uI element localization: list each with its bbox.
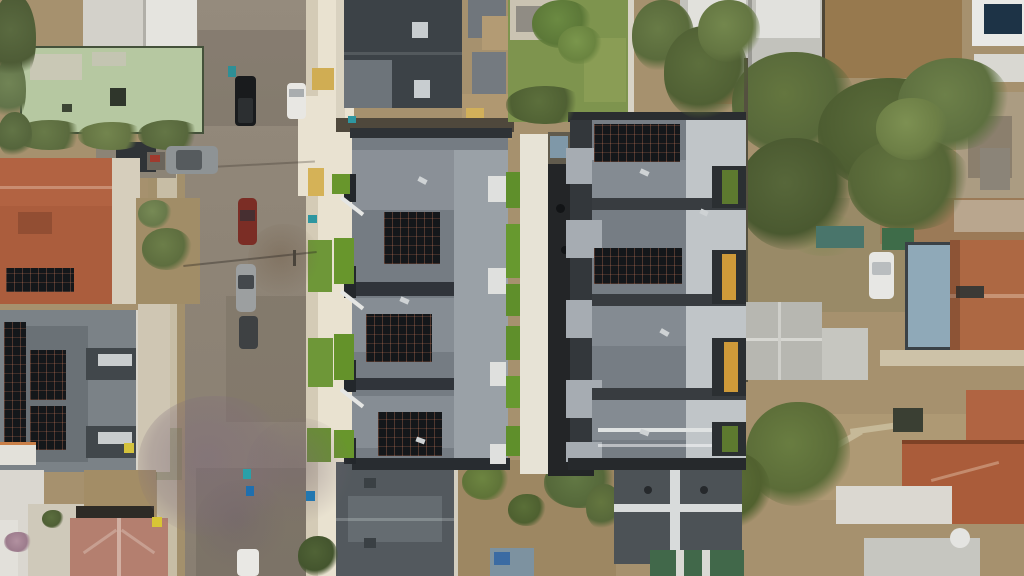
rb2-hip-light-2 xyxy=(592,306,686,346)
mansion-solar-1 xyxy=(30,350,66,400)
lb-lawn-1 xyxy=(332,174,350,194)
rb2-solar-1 xyxy=(594,124,680,162)
car-suv-gray-glass xyxy=(176,150,202,170)
skylight-2 xyxy=(414,80,430,98)
lb-white-patio-2 xyxy=(488,268,506,294)
bin-teal-3 xyxy=(308,215,317,223)
lb-court-green-3 xyxy=(506,284,520,316)
bc-green-stripe-2 xyxy=(702,550,710,576)
bin-yellow-2 xyxy=(152,517,162,527)
lb-court-green-5 xyxy=(506,376,520,408)
rb2-hip-light-3 xyxy=(592,400,686,440)
sand-patch-2 xyxy=(312,68,334,90)
garden-bush-1 xyxy=(142,228,192,270)
terracotta-patch xyxy=(18,212,52,234)
junk-metal-2 xyxy=(980,148,1010,190)
tennis-court-item xyxy=(62,104,72,112)
bc-cross-h xyxy=(614,504,742,512)
backyard-car-glass xyxy=(872,262,891,275)
rb-water-heater xyxy=(950,528,970,548)
bin-teal-1 xyxy=(228,66,236,77)
rb2-gap-green-2 xyxy=(722,426,738,452)
rb2-solar-2 xyxy=(594,248,682,284)
gray-shed xyxy=(740,302,822,380)
terracotta-ridge xyxy=(0,186,116,189)
bin-blue-2 xyxy=(306,491,315,501)
verge-lawn-2 xyxy=(308,338,333,387)
lb-white-patio-4 xyxy=(490,444,506,464)
bc-roof-ridge xyxy=(336,518,454,521)
bl-orange-trim xyxy=(0,442,36,445)
garden-dark-bush xyxy=(506,86,584,124)
bin-blue-1 xyxy=(246,486,254,496)
garden-bush-2 xyxy=(138,200,172,228)
bc-dormer-1 xyxy=(364,478,376,488)
bc-green-roof xyxy=(650,550,744,576)
pink-flower-bush xyxy=(4,532,32,552)
rt-tree-light xyxy=(876,98,948,160)
lb-white-patio-1 xyxy=(488,176,506,202)
skylight-1 xyxy=(412,22,428,38)
construction-dirt-2 xyxy=(482,16,510,50)
dark-building-seam xyxy=(344,52,462,55)
lb-court-green-2 xyxy=(506,224,520,278)
rb2-louvre-1 xyxy=(722,254,736,300)
white-fence-top xyxy=(628,0,634,120)
lb-solar-1 xyxy=(384,212,440,264)
hedge-2 xyxy=(78,122,146,150)
car-red-glass xyxy=(240,210,255,221)
bc-vent-2 xyxy=(700,486,708,494)
rb-terracotta-hip-eave xyxy=(902,440,1024,444)
pink-roof-ridge xyxy=(117,518,121,576)
car-darkgray xyxy=(239,316,258,349)
bin-teal-2 xyxy=(243,469,251,479)
rb2-louvre-2 xyxy=(724,342,738,392)
bc-green-stripe-1 xyxy=(676,550,684,576)
garden-tree-2 xyxy=(558,26,602,64)
car-black-ute-tray xyxy=(238,98,253,123)
rb2-gap-green-1 xyxy=(722,170,738,204)
dark-building-lower-left xyxy=(344,60,392,108)
bc-blue-tarp xyxy=(494,552,510,565)
solar-array-terracotta xyxy=(6,268,74,292)
flat-roof-2 xyxy=(472,52,506,94)
rb-white-shed xyxy=(836,486,952,524)
teal-dot-top xyxy=(348,116,356,123)
backyard-pergola xyxy=(893,408,923,432)
lane-path xyxy=(520,134,550,474)
lb-court-green-4 xyxy=(506,326,520,360)
car-white-bottom xyxy=(237,549,259,576)
small-shed xyxy=(822,328,868,380)
lb-court-green-1 xyxy=(506,172,520,208)
lb-white-patio-3 xyxy=(490,362,506,386)
bl-bush xyxy=(42,510,64,528)
lb-lawn-3 xyxy=(334,334,354,380)
gray-shed-ridge-h xyxy=(740,338,822,341)
lb-lawn-2 xyxy=(334,238,354,284)
backyard-car-white xyxy=(869,252,894,299)
tennis-court-clutter-2 xyxy=(92,52,126,66)
sand-patch-1 xyxy=(308,168,324,196)
power-pole xyxy=(293,250,296,266)
car-red xyxy=(238,198,257,245)
gray-shed-ridge-v xyxy=(778,302,781,380)
tennis-court-clutter-1 xyxy=(30,54,82,80)
bc-shrub-3 xyxy=(508,494,546,526)
lb-top-gable-light xyxy=(352,150,454,210)
court-bush-2 xyxy=(0,112,32,158)
bc-dormer-2 xyxy=(364,538,376,548)
bl-white-orange-roof xyxy=(0,443,36,465)
mansion-gable-trim-1 xyxy=(98,354,132,366)
tc-tree-3 xyxy=(698,0,760,62)
terracotta-vent xyxy=(956,286,984,298)
car-silver-glass xyxy=(238,275,254,289)
lb-solar-2 xyxy=(366,314,432,362)
tr-corner-solar xyxy=(984,4,1022,34)
trailer-cargo xyxy=(150,155,160,162)
lb-bottom-eave xyxy=(352,458,510,470)
aerial-photo-stage xyxy=(0,0,1024,576)
tr-roof-white-2 xyxy=(756,0,820,38)
rb2-hip-light-1 xyxy=(592,160,686,198)
sparse-tree-mid-street xyxy=(248,224,320,296)
path-right xyxy=(880,350,1024,366)
terracotta-big xyxy=(950,240,1024,360)
lane-drain-1 xyxy=(556,204,565,213)
lb-eave-top xyxy=(350,128,512,138)
tennis-court-equipment xyxy=(110,88,126,106)
lb-court-green-6 xyxy=(506,426,520,456)
street-trees-bottom-right xyxy=(298,536,338,576)
pool-glass xyxy=(908,245,954,347)
mansion-solar-strip xyxy=(4,322,26,446)
terracotta-shade xyxy=(950,240,960,360)
bc-vent-1 xyxy=(644,486,652,494)
bin-yellow-1 xyxy=(124,443,134,453)
lb-solar-3 xyxy=(378,412,442,456)
rb2-bottom-eave xyxy=(568,458,746,470)
car-white-van-windshield xyxy=(289,89,304,97)
teal-shed xyxy=(816,226,864,248)
bc-cross-v xyxy=(670,462,680,564)
